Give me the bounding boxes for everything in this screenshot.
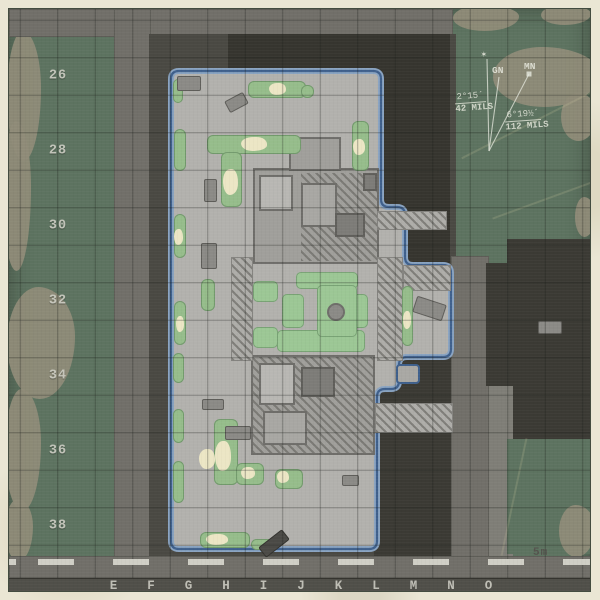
scale-label: 5m: [533, 547, 548, 559]
declination-mn-values: 6°19½´ 112 MILS: [504, 108, 549, 133]
declination-gn-values: 2°15´ 42 MILS: [454, 90, 493, 115]
declination-lines: [9, 9, 591, 592]
declination-star-icon: ✶: [481, 49, 487, 60]
map-screenshot: EFGHIJKLMNO 26283032343638 ✶ GN MN 2°15´…: [0, 0, 600, 600]
declination-gn-label: GN: [492, 65, 503, 76]
declination-mn-label: MN: [524, 61, 535, 72]
map-canvas[interactable]: EFGHIJKLMNO 26283032343638 ✶ GN MN 2°15´…: [8, 8, 591, 592]
